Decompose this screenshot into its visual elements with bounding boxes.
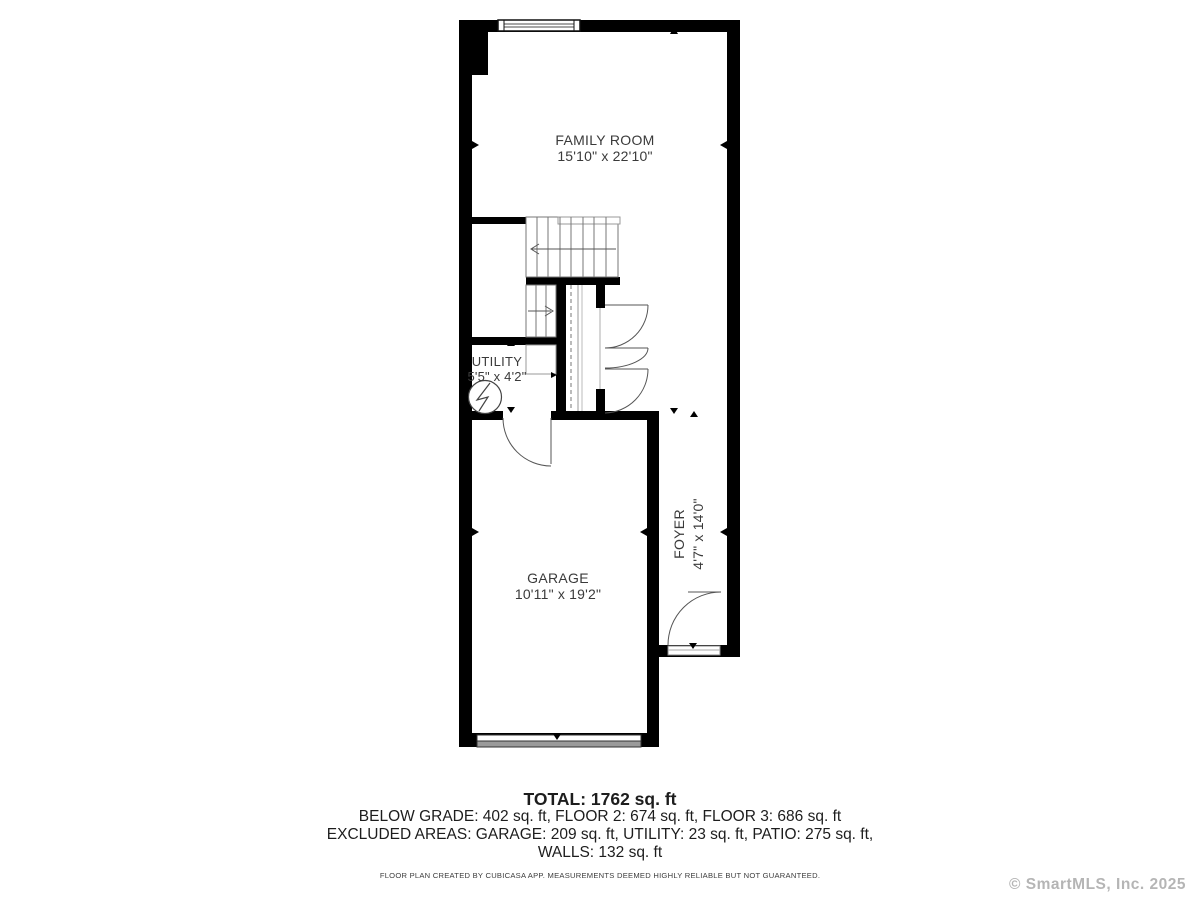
room-dimensions: 5'5" x 4'2": [467, 369, 526, 384]
tick-right-garage: [472, 528, 479, 536]
wall-stairs-bottom: [526, 277, 620, 285]
hall-door-icons: [605, 305, 648, 413]
room-dimensions: 15'10" x 22'10": [555, 148, 654, 164]
room-label-utility: UTILITY 5'5" x 4'2": [467, 354, 526, 384]
tick-down-utility: [507, 407, 515, 413]
wall-right: [727, 20, 740, 657]
floor-plan-drawing: [0, 0, 1200, 780]
tick-left-familyroom: [720, 141, 727, 149]
stairs-upper-run: [526, 217, 620, 277]
tick-up-foyer-opening: [690, 411, 698, 417]
room-name: FOYER: [670, 498, 689, 569]
room-dimensions: 4'7" x 14'0": [689, 498, 708, 569]
room-label-garage: GARAGE 10'11" x 19'2": [515, 570, 601, 602]
walls-area-text: WALLS: 132 sq. ft: [0, 844, 1200, 862]
excluded-areas-text: EXCLUDED AREAS: GARAGE: 209 sq. ft, UTIL…: [0, 826, 1200, 844]
tick-left-foyer: [720, 528, 727, 536]
tick-down-foyer-opening: [670, 408, 678, 414]
floor-areas-text: BELOW GRADE: 402 sq. ft, FLOOR 2: 674 sq…: [0, 808, 1200, 826]
stairs-lower-run: [526, 285, 556, 374]
room-name: GARAGE: [515, 570, 601, 586]
wall-stairshaft-right-upper: [596, 277, 605, 308]
room-name: FAMILY ROOM: [555, 132, 654, 148]
stair-shaft: [566, 285, 600, 411]
wall-utility-top: [459, 337, 556, 345]
wall-garage-right: [647, 411, 659, 747]
total-area-text: TOTAL: 1762 sq. ft: [0, 789, 1200, 810]
room-label-foyer: FOYER 4'7" x 14'0": [670, 498, 708, 569]
wall-stairshaft-left: [556, 277, 566, 420]
room-dimensions: 10'11" x 19'2": [515, 586, 601, 602]
floor-plan-page: FAMILY ROOM 15'10" x 22'10" UTILITY 5'5"…: [0, 0, 1200, 900]
window-icon: [498, 20, 580, 31]
smartmls-watermark: © SmartMLS, Inc. 2025: [1009, 876, 1186, 894]
tick-right-familyroom: [472, 141, 479, 149]
room-name: UTILITY: [467, 354, 526, 369]
room-label-family-room: FAMILY ROOM 15'10" x 22'10": [555, 132, 654, 164]
understair-closet: [526, 345, 556, 374]
wall-garage-top-right: [551, 411, 659, 420]
garage-entry-door-icon: [503, 418, 551, 466]
water-heater-icon: [469, 381, 502, 414]
tick-left-garage: [640, 528, 647, 536]
